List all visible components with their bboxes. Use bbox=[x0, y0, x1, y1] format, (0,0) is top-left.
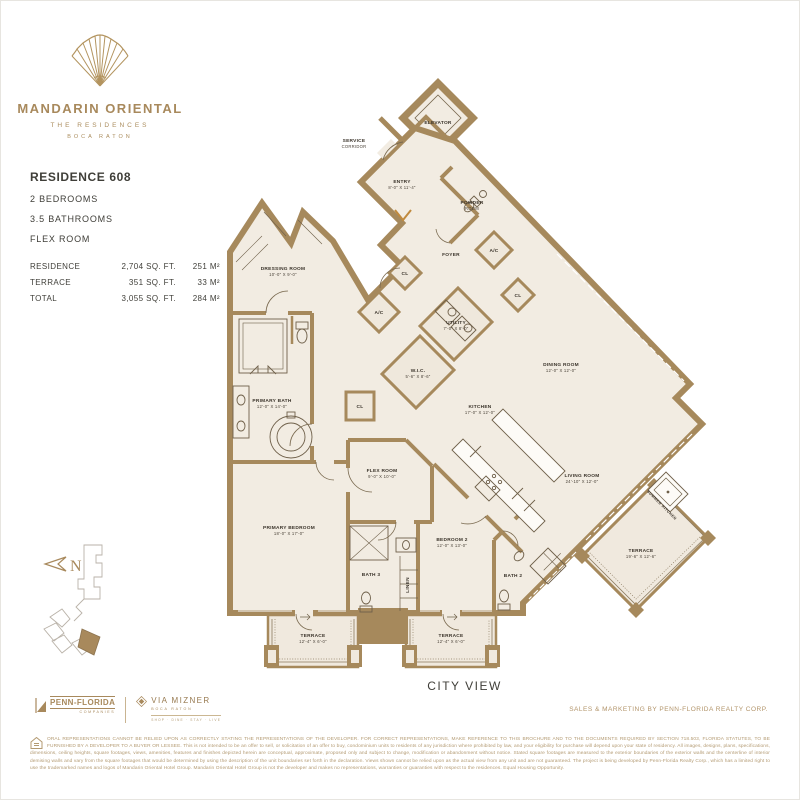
via-mizner-logo: VIA MIZNER BOCA RATON SHOP · DINE · STAY… bbox=[136, 696, 221, 722]
room-label: BEDROOM 212'-0" X 13'-0" bbox=[436, 537, 467, 548]
room-label: UTILITY7'-0" X 8'-0" bbox=[443, 320, 468, 331]
room-label: TERRACE19'-6" X 12'-6" bbox=[626, 548, 656, 559]
room-label: KITCHEN17'-0" X 12'-0" bbox=[465, 404, 495, 415]
room-label: CL bbox=[402, 271, 409, 277]
via-mizner-sub: BOCA RATON bbox=[151, 707, 221, 711]
room-label: DINING ROOM12'-0" X 12'-0" bbox=[543, 362, 579, 373]
unit-highlight bbox=[78, 629, 100, 655]
room-label: FLEX ROOM9'-0" X 10'-0" bbox=[367, 468, 398, 479]
terrace-divider-wall bbox=[358, 608, 408, 644]
via-mizner-name: VIA MIZNER bbox=[151, 696, 221, 705]
logo-divider bbox=[125, 697, 126, 723]
room-label: LINEN bbox=[405, 577, 411, 593]
room-label: CL bbox=[515, 293, 522, 299]
via-mizner-diamond-icon bbox=[136, 696, 147, 707]
sales-marketing-line: SALES & MARKETING BY PENN-FLORIDA REALTY… bbox=[569, 706, 768, 713]
keyplan: N bbox=[40, 543, 124, 661]
room-label: PRIMARY BATH12'-0" X 14'-0" bbox=[252, 398, 291, 409]
equal-housing-icon bbox=[30, 737, 43, 749]
penn-florida-logo: PENN-FLORIDA COMPANIES bbox=[34, 696, 115, 714]
room-label: TERRACE12'-4" X 6'-0" bbox=[437, 633, 465, 644]
footer-logos: PENN-FLORIDA COMPANIES VIA MIZNER BOCA R… bbox=[34, 696, 221, 723]
room-label: LIVING ROOM24'-10" X 12'-0" bbox=[565, 473, 600, 484]
legal-disclaimer: ORAL REPRESENTATIONS CANNOT BE RELIED UP… bbox=[30, 736, 770, 772]
room-label: A/C bbox=[489, 248, 498, 254]
room-label: BATH 2 bbox=[504, 573, 523, 579]
penn-florida-sail-icon bbox=[34, 697, 47, 714]
room-label: CL bbox=[357, 404, 364, 410]
room-label: ELEVATOR bbox=[424, 120, 452, 126]
penn-florida-sub: COMPANIES bbox=[50, 710, 115, 714]
room-label: TERRACE12'-4" X 6'-0" bbox=[299, 633, 327, 644]
room-label: BATH 3 bbox=[362, 572, 381, 578]
north-compass-icon: N bbox=[45, 557, 82, 575]
brochure-page: MANDARIN ORIENTAL THE RESIDENCES BOCA RA… bbox=[0, 0, 800, 800]
via-mizner-tagline: SHOP · DINE · STAY · LIVE bbox=[151, 715, 221, 722]
disclaimer-text: ORAL REPRESENTATIONS CANNOT BE RELIED UP… bbox=[30, 737, 770, 771]
penn-florida-name: PENN-FLORIDA bbox=[50, 696, 115, 709]
view-orientation-label: CITY VIEW bbox=[392, 679, 537, 693]
room-label: A/C bbox=[374, 310, 383, 316]
compass-label: N bbox=[70, 558, 82, 575]
room-label: FOYER bbox=[442, 252, 460, 258]
room-label: SERVICECORRIDOR bbox=[342, 138, 367, 149]
